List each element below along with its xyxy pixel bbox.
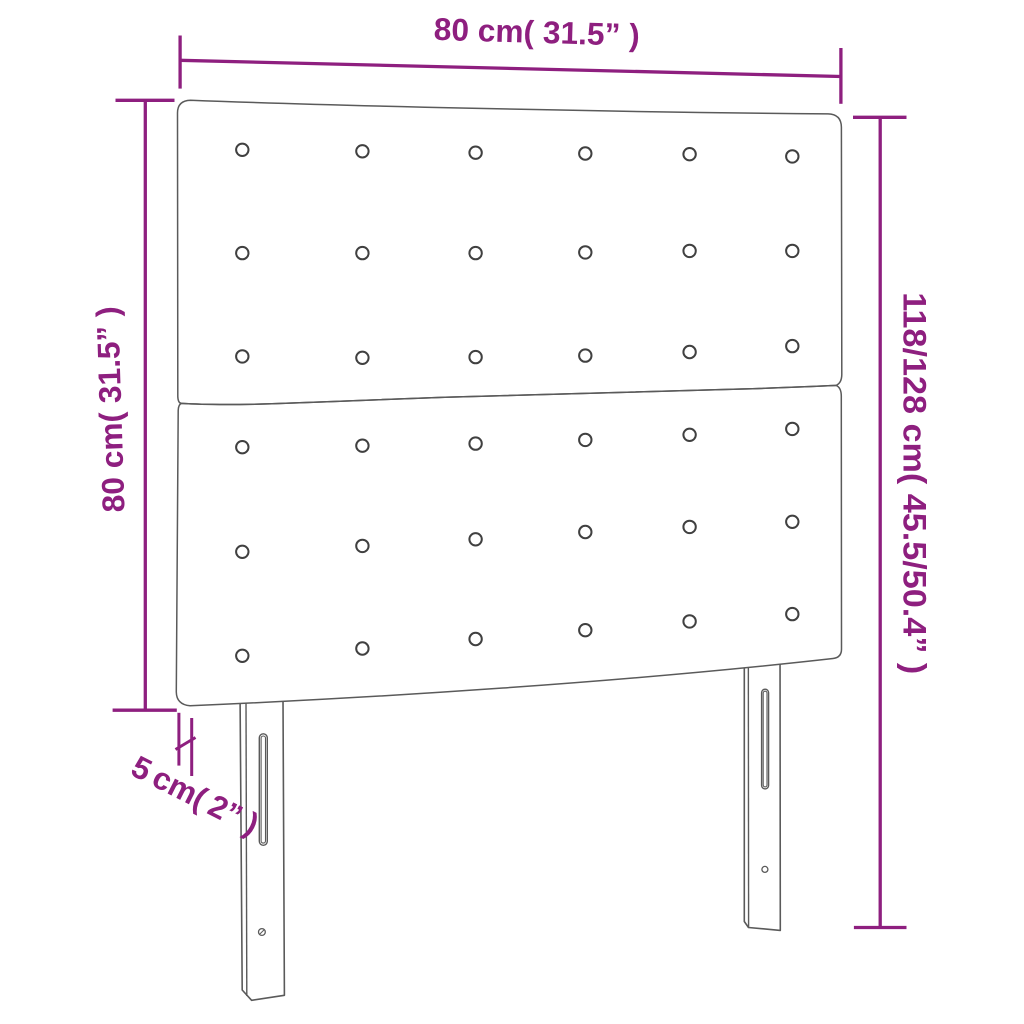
svg-text:80 cm( 31.5” ): 80 cm( 31.5” ) [433,11,640,53]
svg-text:80 cm( 31.5” ): 80 cm( 31.5” ) [89,306,131,513]
svg-text:118/128 cm( 45.5/50.4” ): 118/128 cm( 45.5/50.4” ) [897,292,934,674]
